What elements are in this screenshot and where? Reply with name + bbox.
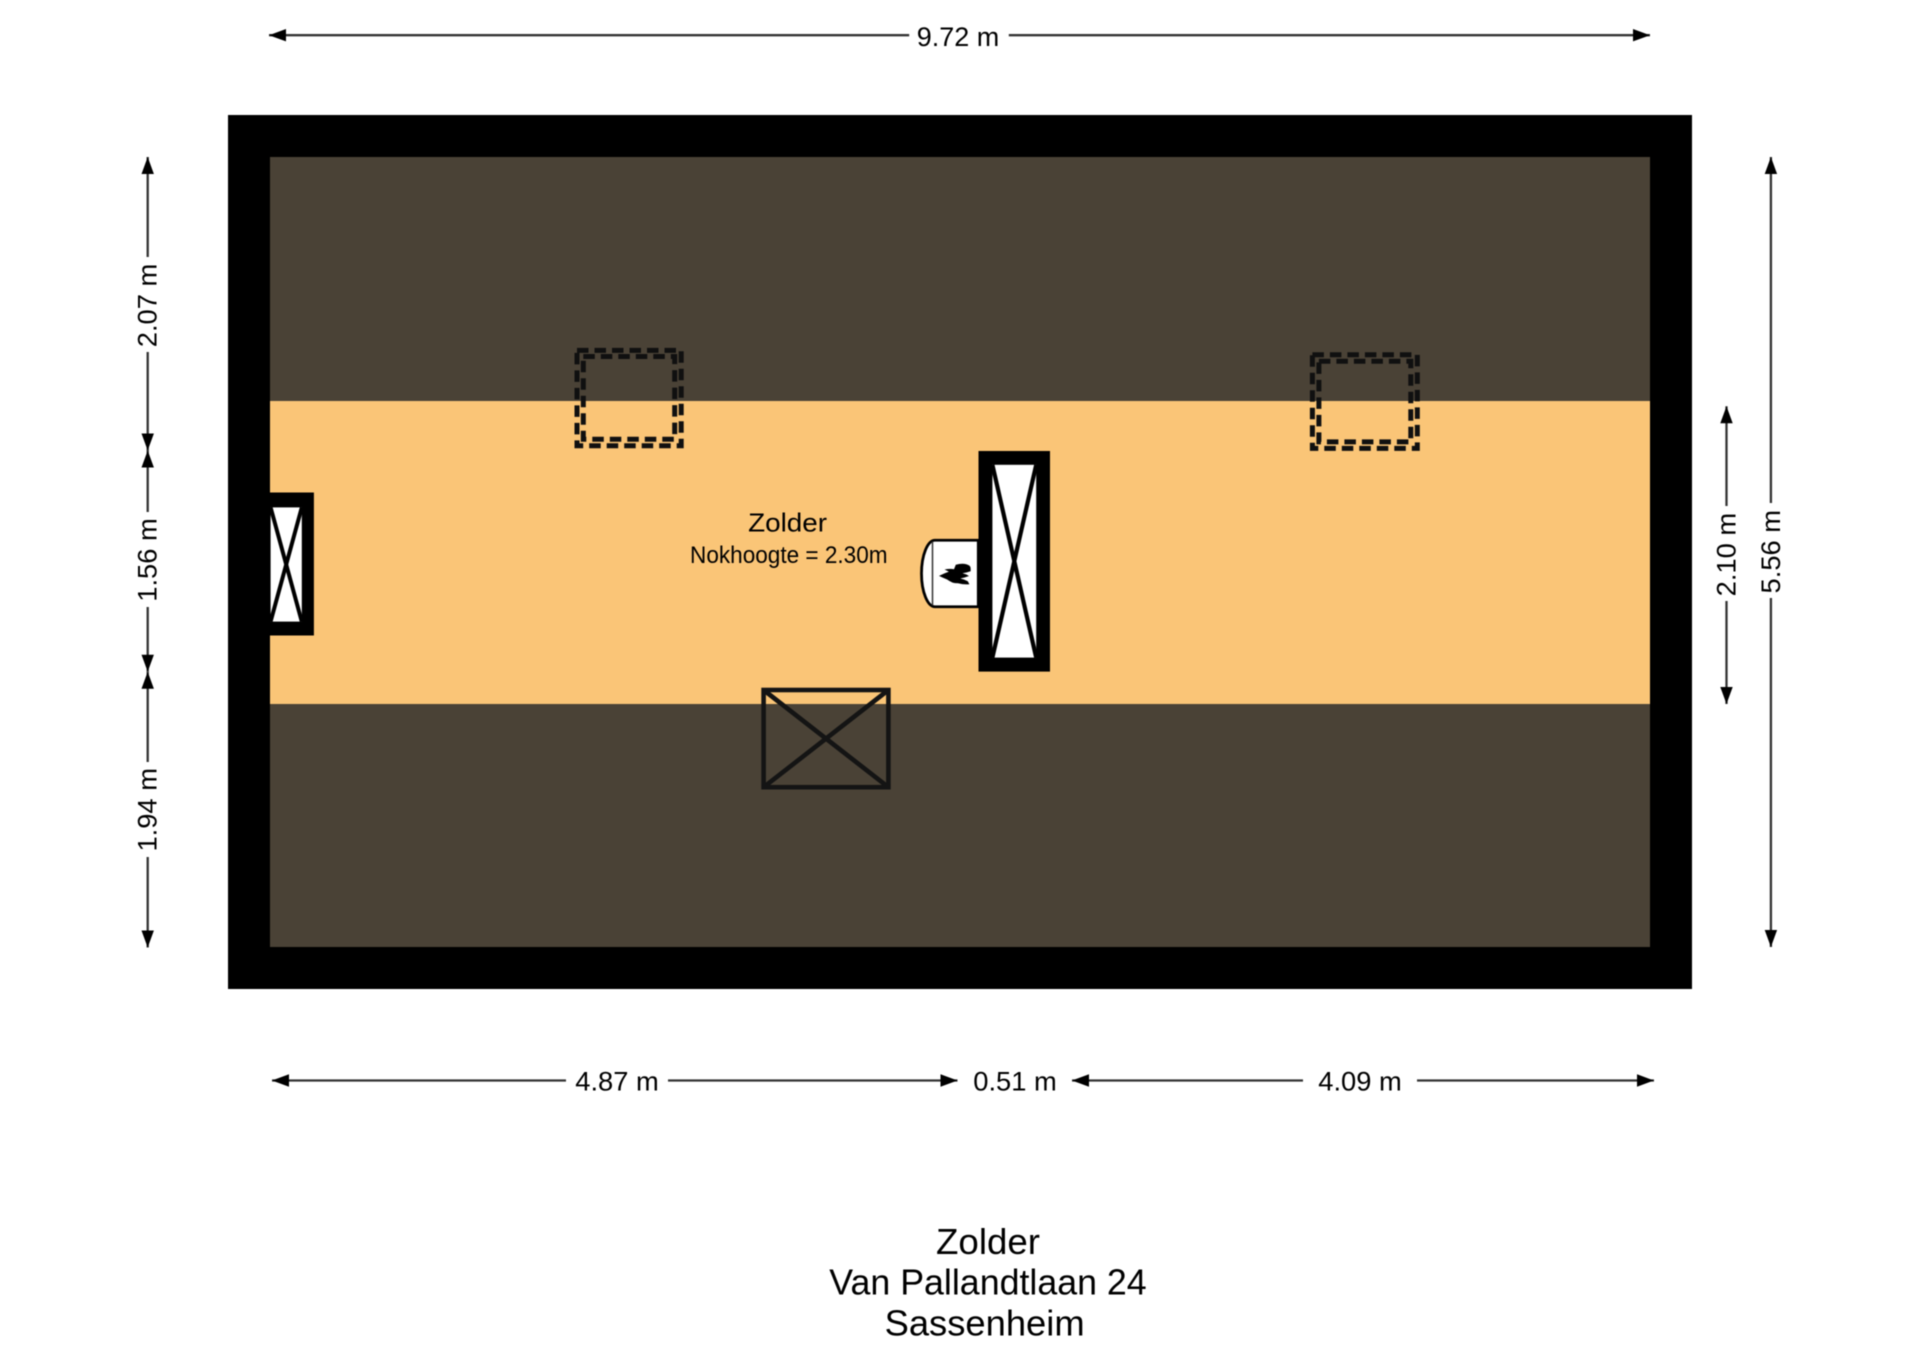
svg-text:1.94 m: 1.94 m	[133, 768, 163, 852]
svg-text:5.56 m: 5.56 m	[1756, 510, 1786, 594]
svg-text:Sassenheim: Sassenheim	[885, 1302, 1085, 1343]
svg-text:2.10 m: 2.10 m	[1712, 513, 1742, 597]
svg-text:2.07 m: 2.07 m	[133, 264, 163, 348]
svg-text:Nokhoogte = 2.30m: Nokhoogte = 2.30m	[690, 542, 888, 569]
svg-text:9.72 m: 9.72 m	[917, 22, 1000, 52]
svg-text:Van Pallandtlaan 24: Van Pallandtlaan 24	[829, 1262, 1146, 1303]
svg-text:Zolder: Zolder	[748, 508, 827, 538]
svg-text:Zolder: Zolder	[936, 1221, 1040, 1262]
svg-text:0.51 m: 0.51 m	[973, 1067, 1057, 1097]
svg-text:4.87 m: 4.87 m	[575, 1067, 659, 1097]
svg-text:4.09 m: 4.09 m	[1318, 1067, 1402, 1097]
svg-text:1.56 m: 1.56 m	[133, 518, 163, 602]
